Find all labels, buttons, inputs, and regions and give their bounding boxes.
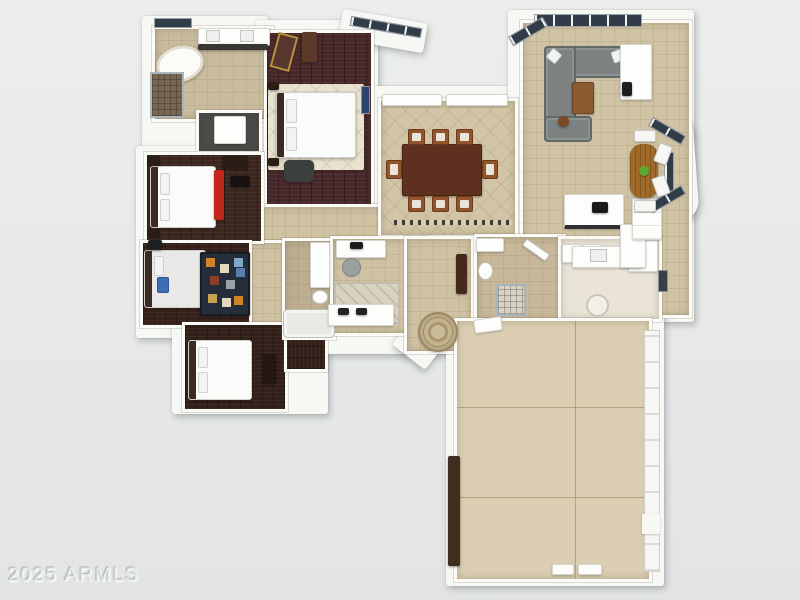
headboard xyxy=(189,341,196,399)
counter-monitor xyxy=(356,308,367,315)
great-room-windows xyxy=(534,14,642,27)
nightstand xyxy=(148,228,160,237)
dining-window-sill xyxy=(446,94,508,106)
closet-island xyxy=(214,116,246,144)
garage-floor-mat xyxy=(578,564,602,575)
hall-bath-vanity xyxy=(310,242,330,288)
table-plant xyxy=(639,166,649,176)
water-heater xyxy=(586,294,609,317)
watermark: 2025 ARMLS xyxy=(8,565,140,587)
desk-monitor xyxy=(350,242,363,249)
nightstand xyxy=(268,158,279,166)
dining-chair xyxy=(408,196,425,212)
round-side-table xyxy=(558,116,569,127)
guest-bath-vanity xyxy=(476,238,504,252)
bedroom-2-bed xyxy=(150,166,216,228)
dining-chair xyxy=(456,129,473,145)
garage-expansion-joint xyxy=(457,497,649,498)
pillow xyxy=(198,372,208,393)
pillow xyxy=(160,199,170,221)
master-bed xyxy=(276,92,356,158)
walk-in-shower xyxy=(150,72,184,118)
floor-plan-photo: 2025 ARMLS xyxy=(0,0,800,600)
dining-chair xyxy=(408,129,425,145)
pillow xyxy=(286,99,297,123)
nook-chair xyxy=(634,130,656,142)
garage-workbench xyxy=(448,456,460,566)
pillow xyxy=(160,173,170,195)
room-garage xyxy=(454,318,652,582)
guest-shower xyxy=(496,284,526,316)
toilet xyxy=(312,290,328,304)
tv-stand xyxy=(230,176,250,187)
pillow xyxy=(154,256,164,276)
dining-chair xyxy=(432,196,449,212)
foyer-tile-medallion xyxy=(418,312,458,352)
dining-chair-end xyxy=(386,160,402,179)
armchair xyxy=(284,160,314,182)
nightstand xyxy=(148,156,160,165)
garage-floor-mat xyxy=(552,564,574,575)
dining-table xyxy=(402,144,482,196)
dresser xyxy=(222,156,248,169)
bedroom-4-bed xyxy=(188,340,252,400)
toilet xyxy=(478,262,493,280)
vanity-counter-dark xyxy=(198,44,268,50)
nook-chair xyxy=(634,200,656,212)
bedroom-3-bed xyxy=(144,250,206,308)
dining-window-sill xyxy=(382,94,442,106)
headboard xyxy=(145,251,152,307)
dresser xyxy=(262,354,276,384)
bedroom-chair xyxy=(302,32,317,62)
garage-door-panels xyxy=(644,330,660,572)
master-window xyxy=(361,86,370,114)
pillow xyxy=(286,127,297,151)
counter-monitor xyxy=(338,308,349,315)
decorative-tile-border xyxy=(394,220,512,225)
cooktop xyxy=(592,202,608,213)
pillow xyxy=(198,347,208,368)
headboard xyxy=(151,167,158,227)
dining-chair xyxy=(456,196,473,212)
dining-chair xyxy=(432,129,449,145)
bathroom-window xyxy=(154,18,192,28)
headboard xyxy=(277,93,284,157)
red-bench xyxy=(214,170,224,220)
garage-expansion-joint xyxy=(575,321,576,579)
nightstand xyxy=(268,82,279,90)
front-door-panel xyxy=(456,254,467,294)
office-chair xyxy=(342,258,361,277)
bathtub-hall xyxy=(284,310,334,337)
fireplace-insert xyxy=(622,82,632,96)
ottoman xyxy=(148,240,162,250)
garage-expansion-joint xyxy=(457,407,649,408)
side-door xyxy=(658,270,668,292)
dining-chair-end xyxy=(482,160,498,179)
kitchen-sink xyxy=(590,249,607,262)
multicolor-rug xyxy=(200,252,250,316)
blue-pillow xyxy=(157,277,169,293)
vanity-sink xyxy=(206,30,220,42)
garage-door-pier xyxy=(642,514,660,534)
vanity-sink xyxy=(240,30,254,42)
coffee-table xyxy=(572,82,594,114)
